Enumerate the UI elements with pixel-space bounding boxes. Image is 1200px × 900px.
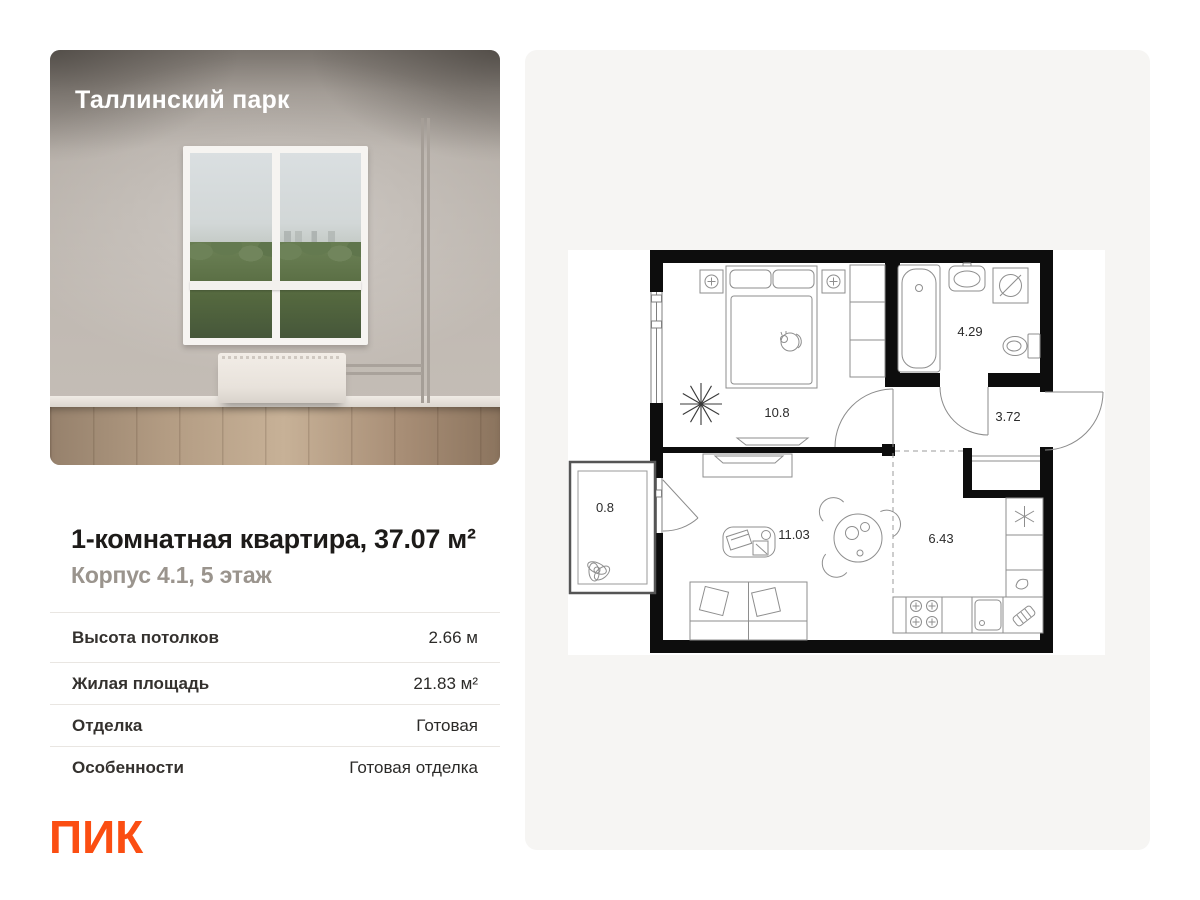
window-pane-left bbox=[190, 153, 272, 338]
sofa bbox=[690, 582, 807, 640]
nightstand-left bbox=[700, 270, 723, 293]
bedroom-window bbox=[651, 292, 662, 403]
nightstand-right bbox=[822, 270, 845, 293]
room-photo-window bbox=[183, 146, 368, 345]
tv-dresser bbox=[703, 454, 792, 477]
hallway-area-label: 3.72 bbox=[995, 409, 1020, 424]
plant-icon bbox=[680, 383, 722, 425]
listing-page: Таллинский парк 1-комнатная квартира, 37… bbox=[0, 0, 1200, 900]
counter-cell-detergent bbox=[1006, 570, 1043, 597]
chair bbox=[817, 554, 847, 583]
floor-plan-canvas: 10.8 4.29 3.72 0.8 11.03 6.43 bbox=[568, 250, 1105, 655]
listing-subtitle: Корпус 4.1, 5 этаж bbox=[71, 562, 272, 589]
window-pane-right bbox=[280, 153, 362, 338]
bedroom-door bbox=[835, 389, 893, 447]
window-transom-bar bbox=[190, 281, 361, 290]
living-room-furniture bbox=[690, 454, 807, 640]
pik-developer-logo: ПИК bbox=[49, 810, 143, 864]
spec-label: Отделка bbox=[72, 716, 142, 736]
balcony-door-swing bbox=[663, 480, 698, 531]
bathtub bbox=[898, 265, 940, 372]
dining-table bbox=[814, 492, 906, 583]
balcony bbox=[570, 462, 655, 593]
spec-value: Готовая отделка bbox=[349, 758, 478, 778]
hall-closet-rod bbox=[972, 456, 1040, 461]
bedroom-area-label: 10.8 bbox=[764, 405, 789, 420]
entrance-door bbox=[1045, 392, 1103, 450]
kitchen-area-label: 6.43 bbox=[928, 531, 953, 546]
listing-title: 1-комнатная квартира, 37.07 м² bbox=[71, 524, 476, 555]
spec-value: 2.66 м bbox=[429, 628, 479, 648]
heating-pipes-horizontal bbox=[346, 364, 422, 367]
counter-cell bbox=[1006, 535, 1043, 570]
bathroom-fixtures bbox=[898, 263, 1040, 372]
washing-machine bbox=[993, 268, 1028, 303]
spec-value: Готовая bbox=[416, 716, 478, 736]
spec-value: 21.83 м² bbox=[413, 674, 478, 694]
kitchen-counter bbox=[893, 597, 1043, 633]
bathroom-area-label: 4.29 bbox=[957, 324, 982, 339]
spec-row-features: Особенности Готовая отделка bbox=[50, 746, 500, 788]
spec-row-ceiling-height: Высота потолков 2.66 м bbox=[50, 612, 500, 662]
floor-plan-card: 10.8 4.29 3.72 0.8 11.03 6.43 bbox=[525, 50, 1150, 850]
spec-label: Особенности bbox=[72, 758, 184, 778]
specs-table: Высота потолков 2.66 м Жилая площадь 21.… bbox=[50, 612, 500, 788]
spec-label: Высота потолков bbox=[72, 628, 219, 648]
spec-row-living-area: Жилая площадь 21.83 м² bbox=[50, 662, 500, 704]
work-desk bbox=[723, 527, 775, 557]
project-name-overlay: Таллинский парк bbox=[75, 86, 290, 115]
bathroom-door bbox=[940, 387, 988, 435]
radiator bbox=[218, 353, 346, 403]
fridge bbox=[1006, 498, 1043, 535]
heating-pipes-vertical bbox=[421, 118, 424, 403]
bedroom-tv bbox=[737, 438, 808, 445]
living-room-area-label: 11.03 bbox=[778, 527, 810, 542]
wardrobe bbox=[850, 265, 885, 377]
kitchen-furniture bbox=[814, 492, 1043, 633]
toilet bbox=[1003, 334, 1040, 358]
wood-floor bbox=[50, 407, 500, 465]
bathroom-sink bbox=[949, 263, 985, 291]
double-bed bbox=[726, 266, 817, 388]
spec-label: Жилая площадь bbox=[72, 674, 209, 694]
floor-plan-drawing: 10.8 4.29 3.72 0.8 11.03 6.43 bbox=[568, 250, 1105, 655]
chair bbox=[814, 492, 844, 521]
apartment-photo-card: Таллинский парк bbox=[50, 50, 500, 465]
balcony-area-label: 0.8 bbox=[596, 500, 614, 515]
spec-row-finish: Отделка Готовая bbox=[50, 704, 500, 746]
kitchen-zone-dashed-line bbox=[893, 451, 963, 597]
